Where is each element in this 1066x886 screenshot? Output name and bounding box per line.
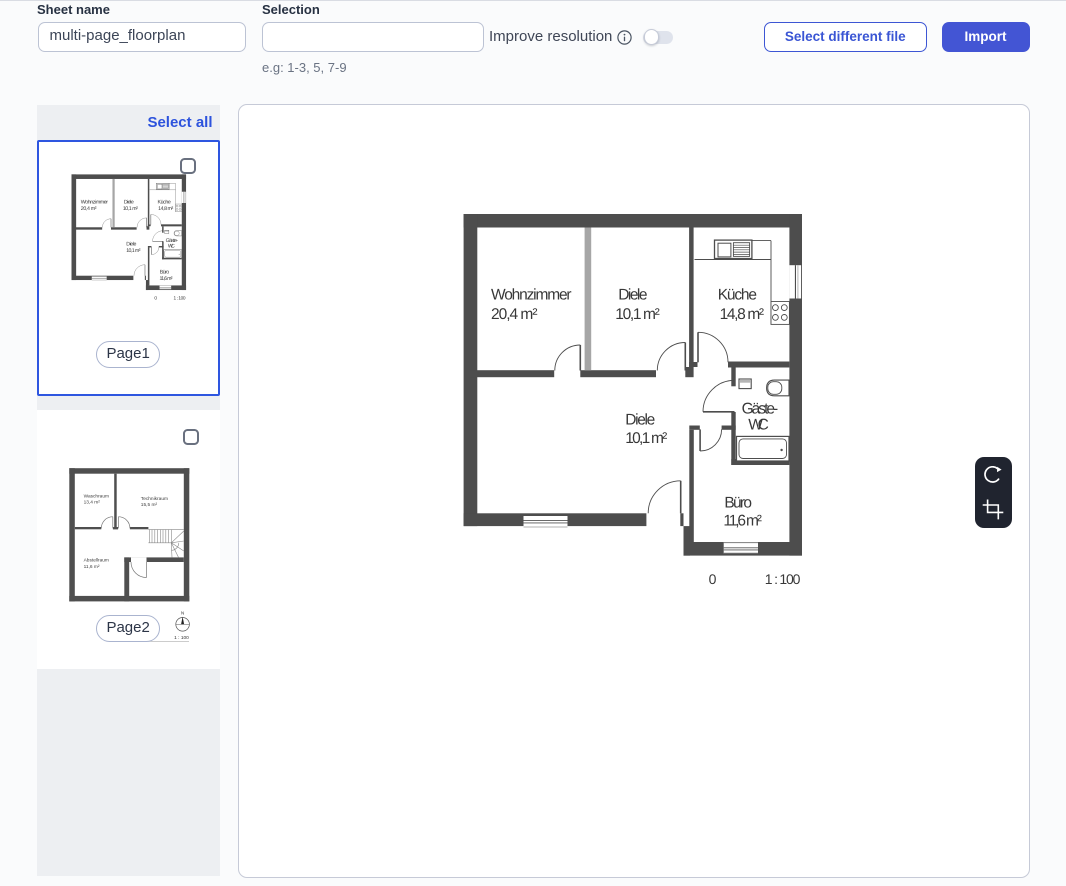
svg-text:11,6 m²: 11,6 m² <box>83 564 99 570</box>
svg-text:Technikraum: Technikraum <box>140 496 167 502</box>
svg-text:Waschraum: Waschraum <box>83 494 108 500</box>
svg-text:15,5 m²: 15,5 m² <box>140 502 157 508</box>
svg-text:13,4 m²: 13,4 m² <box>83 500 100 506</box>
svg-text:Abstellraum: Abstellraum <box>83 558 108 564</box>
svg-text:1 : 100: 1 : 100 <box>174 635 189 641</box>
svg-text:N: N <box>180 611 183 616</box>
